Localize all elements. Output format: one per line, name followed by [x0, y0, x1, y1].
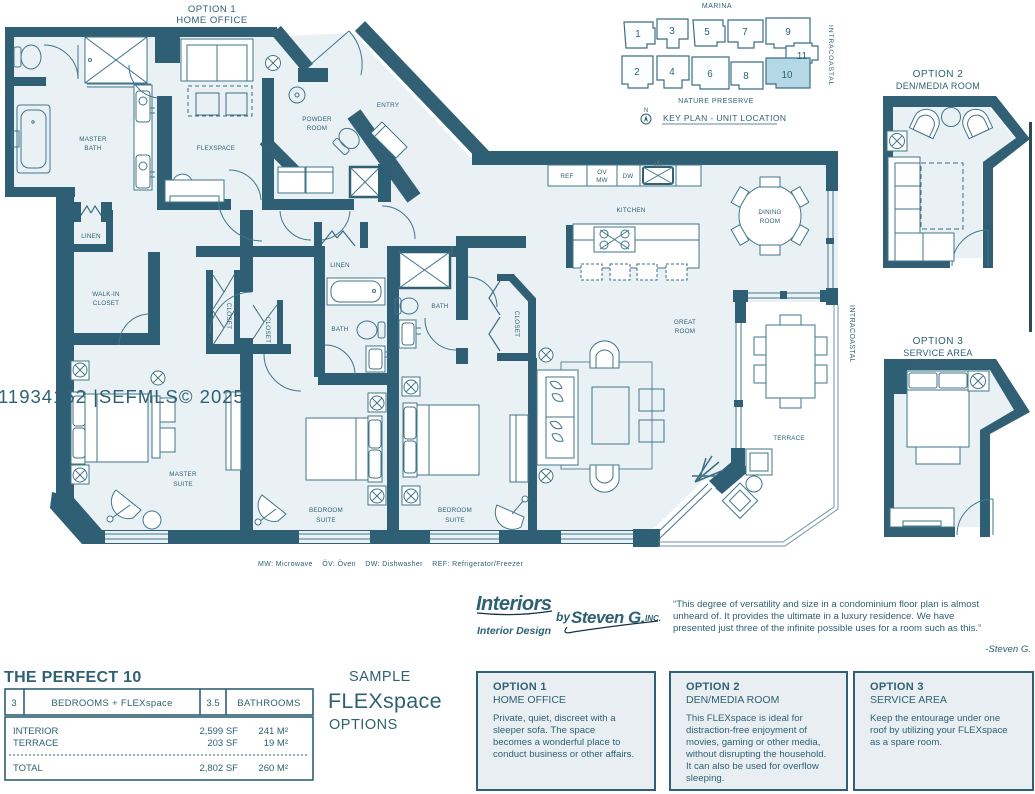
svg-text:as a spare room.: as a spare room.: [870, 737, 942, 748]
svg-text:This FLEXspace is ideal for: This FLEXspace is ideal for: [686, 713, 804, 724]
svg-text:KITCHEN: KITCHEN: [616, 207, 645, 214]
svg-text:10: 10: [782, 70, 793, 81]
svg-text:LINEN: LINEN: [330, 262, 350, 269]
svg-text:MASTER: MASTER: [79, 136, 107, 143]
svg-text:OPTION 1: OPTION 1: [188, 4, 236, 15]
svg-text:19 M²: 19 M²: [264, 738, 288, 749]
svg-text:OPTION 2: OPTION 2: [913, 69, 964, 80]
svg-text:Interior Design: Interior Design: [477, 625, 551, 637]
svg-text:BATHROOMS: BATHROOMS: [237, 698, 300, 709]
svg-text:LINEN: LINEN: [81, 233, 101, 240]
svg-text:conduct business or other affa: conduct business or other affairs.: [493, 749, 634, 760]
svg-text:Private, quiet, discreet with: Private, quiet, discreet with a: [493, 713, 616, 724]
svg-text:INTRACOASTAL: INTRACOASTAL: [827, 25, 834, 86]
svg-text:11: 11: [797, 51, 807, 62]
svg-text:ROOM: ROOM: [307, 125, 327, 132]
svg-text:N: N: [644, 108, 648, 114]
svg-text:MARINA: MARINA: [702, 3, 732, 10]
svg-text:CLOSET: CLOSET: [513, 311, 520, 337]
svg-text:becomes a wonderful place to: becomes a wonderful place to: [493, 737, 620, 748]
svg-text:REF: REF: [560, 173, 573, 180]
svg-text:BATH: BATH: [431, 303, 448, 310]
svg-text:BATH: BATH: [84, 145, 101, 152]
svg-text:HOME OFFICE: HOME OFFICE: [176, 15, 247, 26]
svg-text:It can also be used for overfl: It can also be used for overflow: [686, 761, 819, 772]
svg-text:DEN/MEDIA ROOM: DEN/MEDIA ROOM: [686, 694, 779, 706]
svg-text:MW: Microwave ÖV: Öven D: MW: Microwave ÖV: Öven DW: Dishwasher RE…: [258, 560, 523, 568]
svg-text:ROOM: ROOM: [760, 218, 780, 225]
svg-text:3.5: 3.5: [206, 698, 219, 709]
svg-text:sleeping.: sleeping.: [686, 773, 724, 784]
svg-text:“This degree of versatility an: “This degree of versatility and size in …: [673, 599, 979, 610]
svg-text:203 SF: 203 SF: [207, 738, 238, 749]
svg-text:INTERIOR: INTERIOR: [13, 726, 59, 737]
svg-text:sleeper sofa. The space: sleeper sofa. The space: [493, 725, 595, 736]
svg-text:SUITE: SUITE: [316, 517, 336, 524]
svg-text:TERRACE: TERRACE: [13, 738, 58, 749]
svg-text:2: 2: [634, 67, 639, 78]
svg-text:9: 9: [785, 27, 790, 38]
svg-text:11934152 |SEFMLS© 2025: 11934152 |SEFMLS© 2025: [0, 386, 245, 407]
svg-text:5: 5: [704, 27, 710, 38]
svg-text:THE PERFECT 10: THE PERFECT 10: [4, 669, 142, 686]
svg-text:OV: OV: [597, 169, 607, 176]
svg-text:260 M²: 260 M²: [258, 763, 288, 774]
svg-text:movies, gaming or other media,: movies, gaming or other media,: [686, 737, 820, 748]
svg-text:FLEXspace: FLEXspace: [328, 689, 442, 713]
svg-text:WALK-IN: WALK-IN: [92, 291, 120, 298]
svg-text:unheard of. It provides the ul: unheard of. It provides the ultimate in …: [673, 611, 954, 622]
svg-text:CLOSET: CLOSET: [93, 300, 119, 307]
svg-text:SUITE: SUITE: [445, 517, 465, 524]
svg-text:presented just three of the in: presented just three of the infinite pos…: [673, 623, 981, 634]
svg-text:NATURE PRESERVE: NATURE PRESERVE: [678, 98, 754, 105]
svg-text:OPTION 1: OPTION 1: [493, 681, 547, 693]
svg-text:CLOSET: CLOSET: [264, 317, 271, 343]
svg-text:SERVICE AREA: SERVICE AREA: [903, 348, 972, 358]
svg-text:2,802 SF: 2,802 SF: [199, 763, 238, 774]
svg-text:GREAT: GREAT: [674, 319, 696, 326]
svg-text:MW: MW: [596, 177, 608, 184]
svg-text:BEDROOM: BEDROOM: [309, 507, 343, 514]
svg-text:3: 3: [11, 698, 16, 709]
svg-text:MASTER: MASTER: [169, 471, 197, 478]
svg-text:without disrupting the househo: without disrupting the household.: [685, 749, 826, 760]
svg-text:8: 8: [743, 71, 749, 82]
svg-text:OPTIONS: OPTIONS: [329, 717, 398, 733]
svg-text:OPTION 2: OPTION 2: [686, 681, 740, 693]
svg-text:SERVICE AREA: SERVICE AREA: [870, 694, 947, 706]
svg-text:distraction-free enjoyment of: distraction-free enjoyment of: [686, 725, 807, 736]
svg-text:KEY PLAN - UNIT LOCATION: KEY PLAN - UNIT LOCATION: [663, 113, 786, 123]
svg-text:TOTAL: TOTAL: [13, 763, 43, 774]
svg-text:FLEXSPACE: FLEXSPACE: [197, 145, 235, 152]
svg-text:ROOM: ROOM: [675, 328, 695, 335]
svg-text:CLOSET: CLOSET: [225, 303, 232, 329]
svg-text:SUITE: SUITE: [173, 481, 193, 488]
svg-text:INTRACOASTAL: INTRACOASTAL: [848, 305, 855, 363]
svg-text:DINING: DINING: [758, 209, 781, 216]
svg-text:-Steven G.: -Steven G.: [985, 644, 1031, 655]
svg-text:BATH: BATH: [331, 326, 348, 333]
svg-text:3: 3: [669, 26, 675, 37]
svg-text:POWDER: POWDER: [302, 116, 332, 123]
svg-text:BEDROOM: BEDROOM: [438, 507, 472, 514]
svg-text:ENTRY: ENTRY: [377, 102, 400, 109]
svg-text:6: 6: [707, 69, 713, 80]
svg-text:TERRACE: TERRACE: [773, 435, 805, 442]
svg-text:BEDROOMS + FLEXspace: BEDROOMS + FLEXspace: [51, 698, 172, 709]
svg-text:DW: DW: [623, 173, 634, 180]
svg-text:2,599 SF: 2,599 SF: [199, 726, 238, 737]
svg-text:1: 1: [635, 29, 640, 40]
svg-text:LAUNDRY: LAUNDRY: [293, 199, 325, 206]
svg-text:4: 4: [669, 67, 675, 78]
svg-text:roof by utilizing your FLEXspa: roof by utilizing your FLEXspace: [870, 725, 1008, 736]
svg-text:OPTION 3: OPTION 3: [870, 681, 924, 693]
svg-text:by: by: [556, 610, 571, 624]
svg-text:7: 7: [742, 27, 747, 38]
svg-text:HOME OFFICE: HOME OFFICE: [493, 694, 566, 706]
svg-text:Keep the entourage under one: Keep the entourage under one: [870, 713, 1000, 724]
svg-text:Interiors: Interiors: [476, 593, 552, 615]
svg-text:DEN/MEDIA ROOM: DEN/MEDIA ROOM: [896, 81, 980, 91]
svg-text:OPTION 3: OPTION 3: [913, 336, 964, 347]
svg-text:241 M²: 241 M²: [258, 726, 288, 737]
svg-text:SAMPLE: SAMPLE: [349, 669, 411, 685]
